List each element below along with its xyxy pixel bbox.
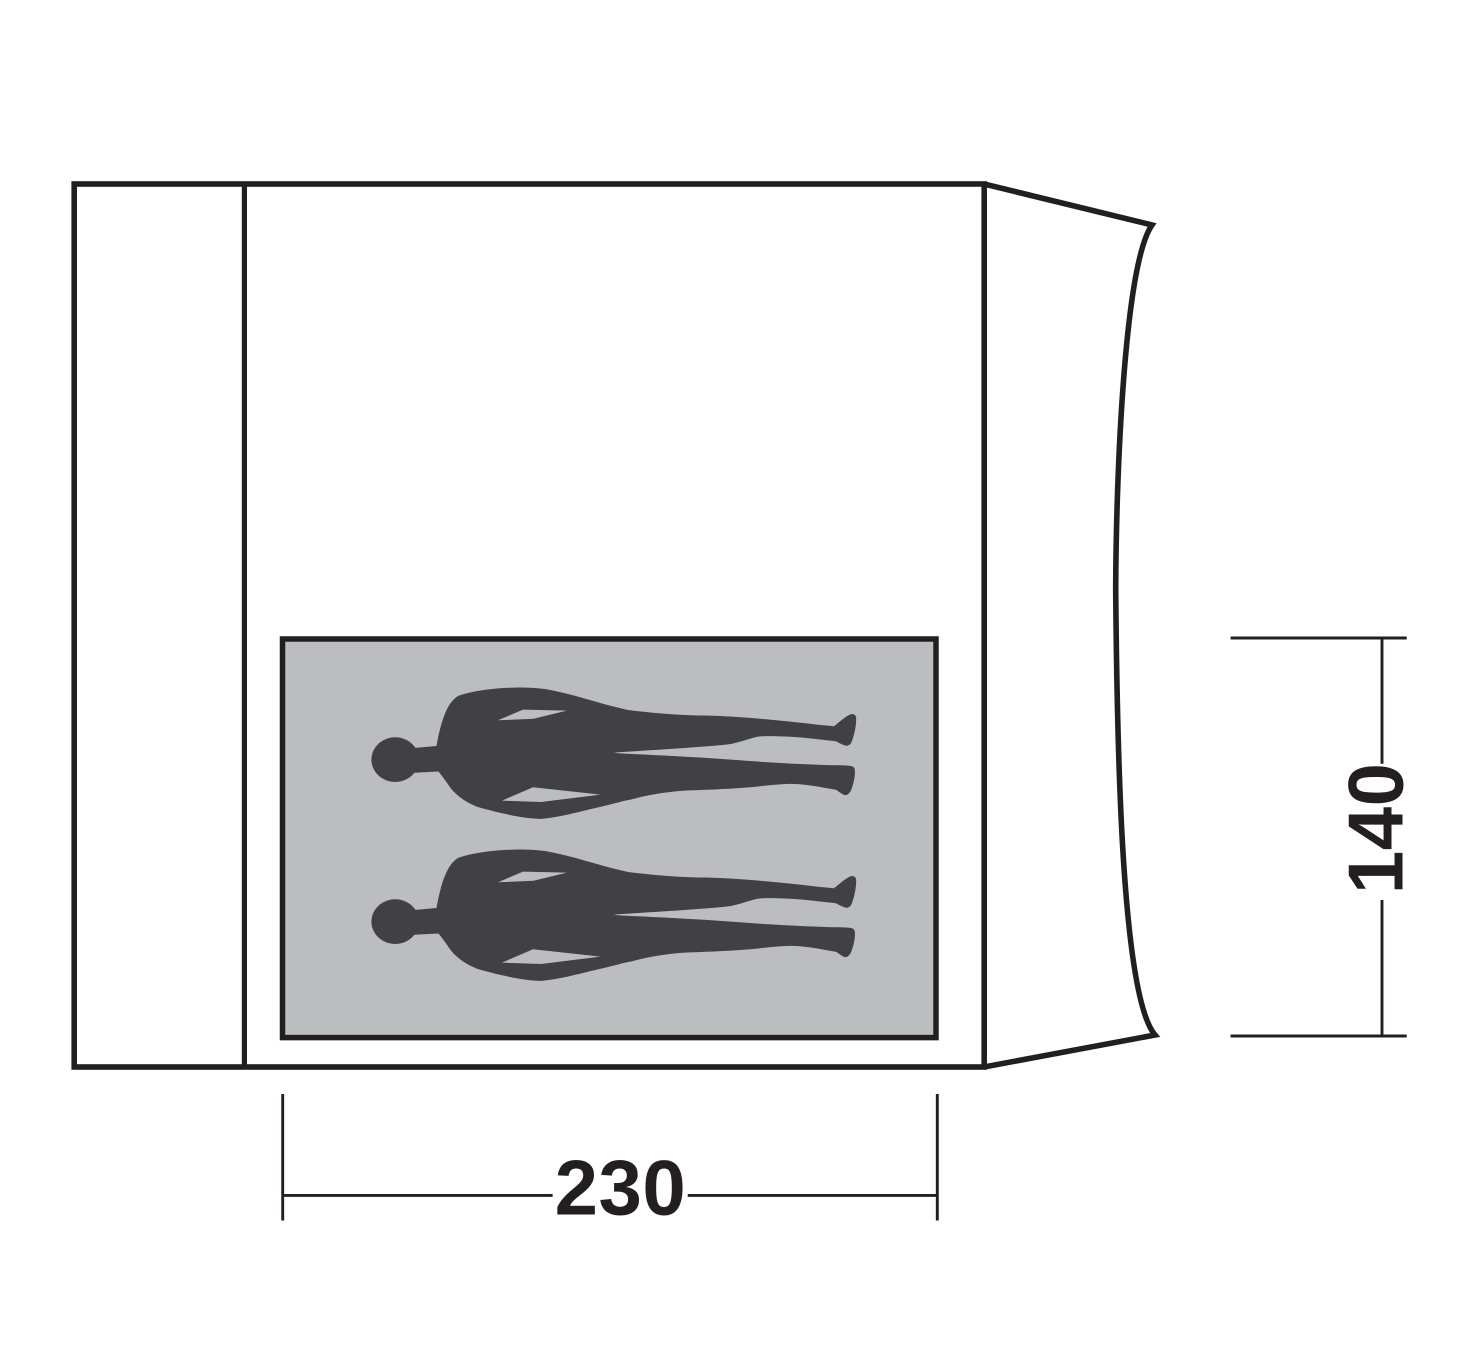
svg-text:140: 140 bbox=[1331, 762, 1419, 894]
svg-text:230: 230 bbox=[555, 1144, 687, 1232]
